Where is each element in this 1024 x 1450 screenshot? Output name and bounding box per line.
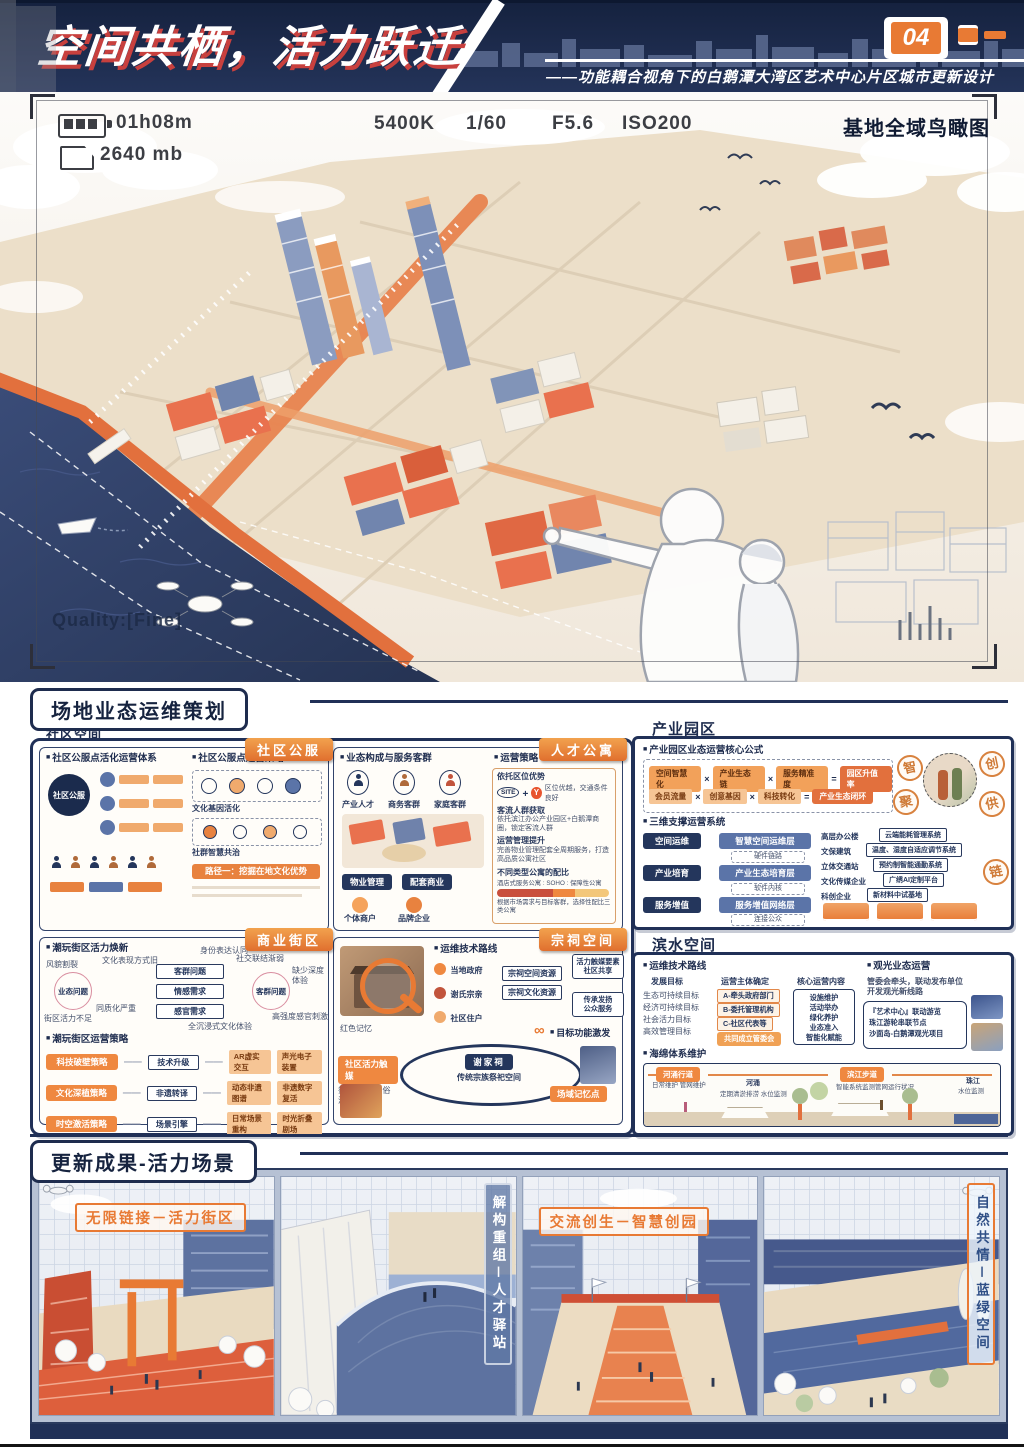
wf-sec-label: 河涌 (746, 1080, 760, 1088)
wf-sponge-title: 海绵体系维护 (643, 1049, 706, 1060)
results-section-title: 更新成果-活力场景 (30, 1140, 257, 1183)
wf-body: A-牵头政府部门 (717, 989, 780, 1003)
an-center: 谢家祠 传统宗族祭祀空间 (450, 1052, 528, 1083)
cs-item-2: 社群智慧共治 (192, 848, 240, 858)
panel-waterfront: 运维技术路线 发展目标 生态可持续目标 经济可持续目标 社会活力目标 高效管理目… (632, 952, 1014, 1136)
an-thumb-plaque (580, 1046, 616, 1084)
an-key2: 场域记忆点 (550, 1086, 607, 1102)
an-outcome-1: 活力触媒要素社区共享 (572, 954, 624, 979)
ta-tag-retail: 配套商业 (402, 874, 452, 890)
bottom-rule (0, 1444, 1024, 1447)
cb-strategy-title: 潮玩街区运营策略 (46, 1034, 128, 1045)
cb-renew-title: 潮玩街区活力焕新 (46, 943, 128, 954)
cb-node: 风貌割裂 (46, 960, 78, 970)
tag-community-service: 社区公服 (245, 738, 333, 761)
ind-item-v: 广绣AI定制平台 (883, 873, 944, 887)
cb-strategy-rows: 科技破壁策略–– 技术升级–– AR虚实交互声光电子装置 文化深植策略–– 非遗… (46, 1050, 322, 1136)
stamp-ju: 聚 (891, 787, 922, 818)
ind-item-v: 新材料中试基地 (867, 888, 928, 902)
ta-groups: 产业人才 商务客群 家庭客群 (342, 770, 466, 810)
wf-col3-title: 核心运营内容 (797, 977, 845, 987)
scene-label-campus: 交流创生－智慧创园 (539, 1207, 710, 1236)
wf-goal: 生态可持续目标 (643, 991, 699, 1001)
infinity-icon (534, 1022, 545, 1040)
wf-route-title: 运维技术路线 (643, 961, 706, 972)
scene-talent-art (281, 1177, 516, 1415)
scene-talent-station: 解构重组－人才驿站 (280, 1176, 517, 1416)
section-divider (30, 1134, 1008, 1137)
wf-body: C-社区代表等 (717, 1017, 773, 1031)
cb-circle-business: 业态问题 (54, 972, 92, 1010)
ind-item-v: 温度、湿度自适应调节系统 (866, 843, 962, 857)
wf-sec-label: 定期清淤排涝 水位监测 (720, 1091, 787, 1099)
tag-talent-apartment: 人才公寓 (539, 738, 627, 761)
ind-flow-v0: 智慧空间运维层 (719, 833, 811, 849)
scene-street: 无限链接－活力街区 (38, 1176, 275, 1416)
ind-cards (823, 903, 977, 921)
hud-shutter: 1/60 (466, 113, 507, 135)
wf-goal: 社会活力目标 (643, 1015, 691, 1025)
wf-thumb-city (971, 1023, 1003, 1051)
results-rule (300, 1152, 1008, 1155)
scene-label-street: 无限链接－活力街区 (75, 1203, 246, 1232)
wf-col1-title: 发展目标 (651, 977, 683, 987)
hud-storage: 2640 mb (100, 144, 183, 166)
community-space-panel: 社区公服 社区公服点活化运营体系 社区公服 社区公服点运营策略 (30, 738, 634, 1136)
ind-item-k: 高层办公楼 (821, 831, 859, 842)
wf-sight-title: 观光业态运营 (867, 961, 930, 972)
ta-ops-box: 依托区位优势 SITE Y 区位优越，交通条件良好 客流人群获取 依托滨江办公产… (492, 768, 616, 924)
wf-section-diagram: 河涌行道 滨江步道 日常维护 管网维护 河涌 定期清淤排涝 水位监测 智能系统监… (643, 1063, 1001, 1127)
hud-iso: ISO200 (622, 113, 692, 135)
ta-ratio-bar (497, 889, 609, 897)
scene-blue-green: 自然共情－蓝绿空间 (763, 1176, 1000, 1416)
stamp-chuang: 创 (977, 749, 1008, 780)
cs-hub: 社区公服 (48, 774, 90, 816)
stamp-zhi: 智 (895, 753, 926, 784)
hud-battery-time: 01h08m (116, 112, 193, 134)
metro-y-icon: Y (531, 787, 541, 799)
ind-item-k: 文保建筑 (821, 846, 851, 857)
scene-label-bluegreen: 自然共情－蓝绿空间 (967, 1183, 995, 1365)
ind-system-title: 三维支撑运营系统 (643, 817, 725, 828)
ops-section-title: 场地业态运维策划 (30, 688, 248, 731)
footer-bar (30, 1424, 1008, 1439)
wf-sec-label: 水位监测 (958, 1088, 984, 1096)
tag-ancestral-hall: 宗祠空间 (539, 928, 627, 951)
wf-goal: 高效管理目标 (643, 1027, 691, 1037)
dash-icon (984, 31, 1006, 39)
drone-icon (43, 1185, 73, 1194)
panel-commercial-street: 商业街区 潮玩街区活力焕新 风貌割裂 文化表现方式旧 街区活力不足 同质化严重 … (39, 937, 329, 1125)
ta-left-title: 业态构成与服务客群 (340, 753, 432, 764)
hud-white-balance: 5400K (374, 113, 435, 135)
divider (192, 886, 320, 889)
poster: 空间共栖，活力跃迁 04 ——功能耦合视角下的白鹅潭大湾区艺术中心片区城市更新设… (0, 0, 1024, 1450)
view-label: 基地全域鸟瞰图 (843, 112, 990, 141)
ops-section-rule (310, 700, 1008, 703)
cs-strategy-icons-2 (192, 818, 322, 846)
page-badge: 04 (884, 17, 1004, 61)
badge-number: 04 (891, 22, 941, 54)
an-route-title: 运维技术路线 (434, 944, 497, 955)
an-memory-label: 红色记忆 (340, 1024, 372, 1034)
wf-body: B-委托管理机构 (717, 1003, 780, 1017)
wf-sec-label: 日常维护 管网维护 (652, 1082, 706, 1090)
cs-path-banner: 路径一：挖掘在地文化优势 (192, 864, 320, 879)
tag-commercial-street: 商业街区 (245, 928, 333, 951)
ind-flow-k0: 空间运维 (643, 833, 701, 849)
ind-flow-s1: 软件内核 (731, 883, 805, 895)
ind-flow-s2: 连接公众 (731, 914, 805, 926)
cb-mid-stack: 客群问题 情感需求 感官需求 (156, 964, 224, 1019)
stamp-gong: 供 (977, 789, 1008, 820)
poster-subtitle: ——功能耦合视角下的白鹅潭大湾区艺术中心片区城市更新设计 (546, 66, 994, 87)
cb-node: 缺少深度体验 (292, 966, 328, 986)
panel-industry-park: 产业园区业态运营核心公式 空间智慧化× 产业生态链× 服务精准度= 园区升值率 … (632, 736, 1014, 930)
ind-flow-v1: 产业生态培育层 (719, 865, 811, 881)
an-thumb-art (340, 1084, 382, 1118)
cs-mini-tags (50, 882, 162, 892)
ta-tag-property: 物业管理 (342, 874, 392, 890)
cs-left-title: 社区公服点活化运营体系 (46, 753, 157, 764)
wf-sight-box: 『艺术中心』联动游览珠江游轮串联节点沙面岛-白鹅潭观光项目 (863, 1001, 967, 1049)
scene-bluegreen-art (764, 1177, 999, 1415)
cb-node: 全沉浸式文化体验 (188, 1022, 252, 1032)
an-goal-title: 目标功能激发 (550, 1028, 610, 1039)
cs-flow-rows (100, 772, 183, 835)
wf-contents-box: 设施维护活动举办绿化养护 业态准入智能化赋能 (793, 989, 855, 1045)
cs-strategy-icons (192, 770, 322, 802)
wf-tag-riverwalk: 滨江步道 (840, 1067, 884, 1082)
poster-title: 空间共栖，活力跃迁 (35, 11, 465, 75)
panel-community-service: 社区公服 社区公服点活化运营体系 社区公服 社区公服点运营策略 (39, 747, 329, 931)
ta-actors: 个体商户 品牌企业 (344, 896, 430, 924)
ind-item-k: 立体交通站 (821, 861, 859, 872)
panel-talent-apartment: 人才公寓 业态构成与服务客群 产业人才 商务客群 家庭客群 物业管理 配套商业 … (333, 747, 623, 931)
wf-tag-channel: 河涌行道 (656, 1067, 700, 1082)
ta-tags: 物业管理 配套商业 (342, 874, 452, 890)
divider (192, 894, 302, 897)
wf-sec-label: 珠江 (966, 1078, 980, 1086)
panel-ancestral-hall: 宗祠空间 运维技术路线 当地政府 谢氏宗亲 社区住户 宗祠空间资源 宗祠文化资源… (333, 937, 623, 1125)
hud-aperture: F5.6 (552, 113, 594, 135)
an-resources: 宗祠空间资源 宗祠文化资源 (502, 966, 562, 1000)
header-banner: 空间共栖，活力跃迁 04 ——功能耦合视角下的白鹅潭大湾区艺术中心片区城市更新设… (0, 0, 1024, 95)
cb-node: 街区活力不足 (44, 1014, 92, 1024)
hud-quality: Quality:[Fine] (52, 610, 182, 631)
frame-corner-icon (30, 644, 55, 669)
scene-label-talent: 解构重组－人才驿站 (484, 1183, 512, 1365)
wf-body-result: 共同成立管委会 (717, 1032, 781, 1046)
frame-corner-icon (972, 644, 997, 669)
frame-corner-icon (30, 94, 55, 119)
cs-item-1: 文化基因活化 (192, 804, 240, 814)
cb-node: 高强度感官刺激 (272, 1012, 328, 1022)
ind-item-k: 科创企业 (821, 891, 851, 902)
stamp-lian: 链 (981, 857, 1012, 888)
ind-flow-s0: 硬件链路 (731, 851, 805, 863)
ind-flow-k1: 产业培育 (643, 865, 701, 881)
ind-formula-box: 空间智慧化× 产业生态链× 服务精准度= 园区升值率 会员流量× 创意基因× 科… (643, 759, 893, 813)
wf-col2-title: 运营主体确定 (721, 977, 769, 987)
site-icon: SITE (497, 787, 519, 798)
cb-node: 文化表现方式旧 (102, 956, 158, 966)
an-outcome-2: 传承发扬公众服务 (572, 992, 624, 1017)
ta-ops-title: 运营策略 (494, 753, 538, 764)
results-gallery: 无限链接－活力街区 解构重组－人才驿站 (30, 1168, 1008, 1424)
an-actors: 当地政府 谢氏宗亲 社区住户 (434, 960, 482, 1026)
wf-goal: 经济可持续目标 (643, 1003, 699, 1013)
ta-illustration (342, 814, 484, 868)
wf-lead2: 开发观光新线路 (867, 987, 923, 997)
ind-flow-k2: 服务增值 (643, 897, 701, 913)
cb-circle-customer: 客群问题 (252, 972, 290, 1010)
viewfinder-frame (36, 100, 988, 662)
cb-node: 同质化严重 (96, 1004, 136, 1014)
cb-node: 身份表达认同 (200, 946, 248, 956)
scene-smart-campus: 交流创生－智慧创园 (522, 1176, 759, 1416)
ind-item-v: 预约制智能通勤系统 (873, 858, 948, 872)
ind-formula-title: 产业园区业态运营核心公式 (643, 745, 763, 756)
ind-flow-v2: 服务增值网络层 (719, 897, 811, 913)
wf-lead: 管委会牵头，联动发布单位 (867, 977, 963, 987)
ind-item-v: 云端能耗管理系统 (879, 828, 947, 842)
cs-people-icons (50, 856, 157, 868)
ind-item-k: 文化传媒企业 (821, 876, 866, 887)
battery-icon (58, 114, 106, 138)
menu-lines-icon (958, 25, 978, 45)
ind-photo (923, 753, 977, 807)
ta-r0-desc: 区位优越，交通条件良好 (545, 783, 611, 803)
wf-thumb-river (971, 995, 1003, 1019)
